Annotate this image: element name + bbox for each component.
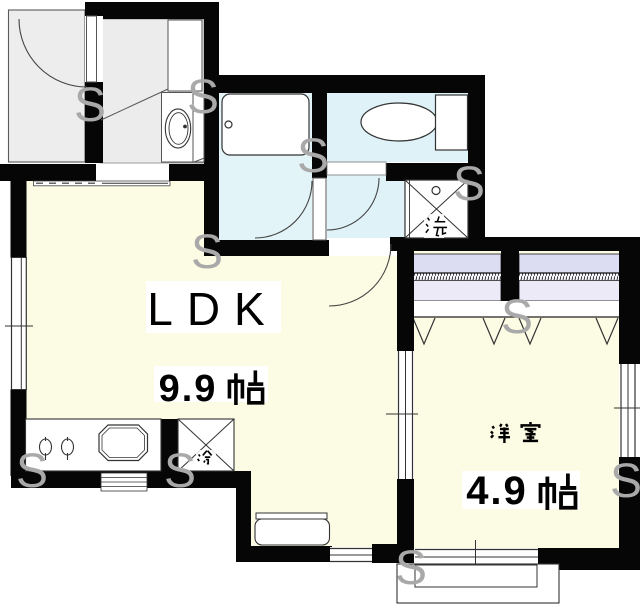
svg-text:9.9: 9.9 (159, 368, 218, 410)
svg-text:LDK: LDK (147, 283, 278, 335)
svg-text:S: S (453, 158, 485, 211)
svg-text:S: S (16, 445, 48, 498)
svg-text:4.9: 4.9 (466, 469, 528, 513)
svg-text:S: S (74, 79, 106, 132)
svg-text:S: S (395, 542, 427, 595)
svg-text:S: S (187, 71, 219, 124)
svg-text:S: S (501, 291, 533, 344)
svg-text:S: S (610, 455, 640, 508)
svg-text:S: S (164, 445, 196, 498)
svg-text:S: S (297, 130, 329, 183)
svg-text:S: S (191, 226, 223, 279)
